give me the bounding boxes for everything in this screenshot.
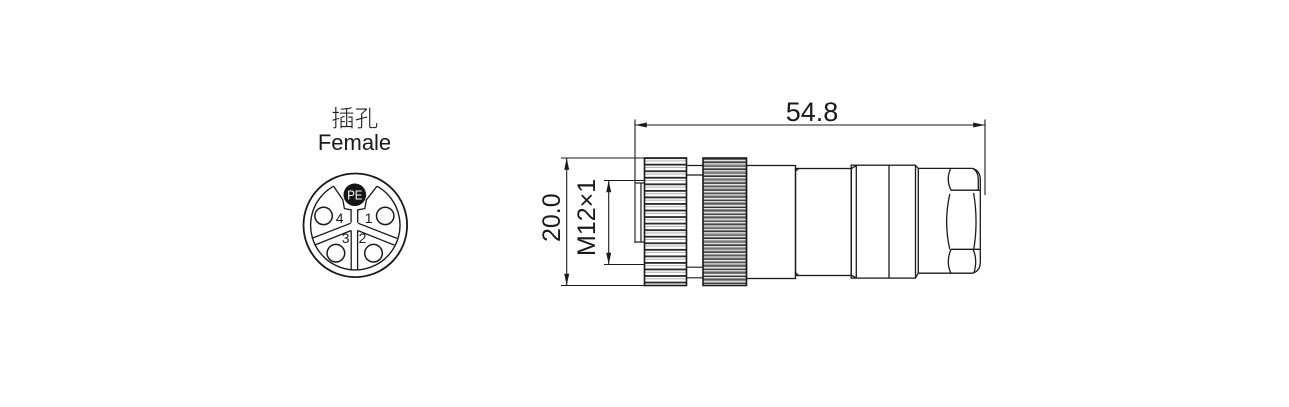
svg-text:3: 3: [342, 230, 350, 246]
svg-text:20.0: 20.0: [538, 193, 566, 242]
svg-text:54.8: 54.8: [786, 97, 839, 127]
svg-text:4: 4: [336, 210, 344, 226]
svg-text:1: 1: [365, 210, 373, 226]
svg-text:Female: Female: [318, 130, 391, 155]
svg-text:PE: PE: [347, 187, 362, 202]
svg-text:2: 2: [359, 230, 367, 246]
svg-text:M12×1: M12×1: [573, 179, 601, 256]
